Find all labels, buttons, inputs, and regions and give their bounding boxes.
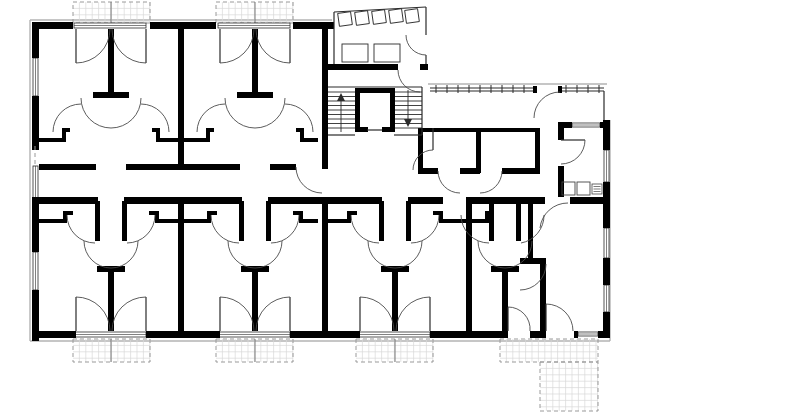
appliance	[577, 182, 590, 195]
wall-segment	[533, 86, 537, 93]
window	[218, 23, 290, 28]
wall-segment	[178, 29, 184, 164]
door-swing-arc	[84, 241, 138, 268]
stair-core-layer	[328, 90, 422, 132]
door-swing-arc	[406, 35, 426, 55]
wall-segment	[355, 127, 368, 132]
window	[604, 150, 609, 182]
wall-segment	[347, 211, 357, 215]
wall-segment	[535, 128, 540, 173]
storage-unit	[342, 44, 368, 62]
wall-segment	[520, 258, 546, 264]
door-swing-arc	[285, 104, 313, 132]
wall-segment	[558, 166, 564, 197]
wall-segment	[206, 128, 214, 132]
wall-segment	[304, 138, 318, 142]
door-swing-arc	[76, 297, 110, 331]
bike-rack	[372, 10, 387, 25]
window	[74, 332, 146, 337]
door-swing-arc	[141, 104, 169, 132]
bike-rack	[405, 9, 420, 24]
wall-segment	[62, 128, 70, 132]
door-swing-arc	[67, 215, 95, 243]
bike-rack	[338, 12, 353, 27]
window	[604, 228, 609, 258]
wall-segment	[418, 168, 438, 174]
wall-segment	[570, 197, 603, 204]
wall-segment	[558, 122, 564, 140]
window	[74, 23, 146, 28]
facade-outline-layer	[30, 20, 610, 341]
wall-segment	[381, 266, 409, 272]
wall-segment	[32, 331, 76, 338]
balcony	[216, 339, 293, 362]
wall-segment	[32, 96, 39, 150]
wall-segment	[184, 219, 207, 223]
wall-segment	[466, 197, 472, 338]
wall-segment	[296, 128, 304, 132]
door-swing-arc	[225, 98, 285, 128]
window	[572, 123, 600, 127]
wall-segment	[355, 88, 395, 93]
wall-segment	[355, 88, 360, 132]
wall-segment	[303, 219, 318, 223]
wall-segment	[322, 22, 328, 169]
window	[604, 285, 609, 312]
door-swing-arc	[112, 297, 146, 331]
wall-segment	[159, 219, 178, 223]
wall-segment	[237, 92, 273, 98]
wall-segment	[32, 197, 98, 204]
door-swing-arc	[546, 304, 573, 331]
wall-segment	[160, 138, 178, 142]
door-swing-arc	[411, 215, 439, 243]
wall-segment	[39, 219, 63, 223]
wall-segment	[126, 164, 182, 170]
door-swing-arc	[220, 297, 254, 331]
wall-segment	[408, 197, 443, 204]
door-swing-arc	[256, 297, 290, 331]
door-swing-arc	[197, 104, 225, 132]
wall-segment	[379, 201, 384, 241]
window	[358, 332, 430, 337]
door-swing-arc	[256, 29, 290, 63]
wall-segment	[239, 201, 244, 241]
door-swing-arc	[76, 29, 110, 63]
wall-segment	[574, 331, 578, 338]
door-swing-arc	[534, 92, 560, 118]
door-swing-arc	[561, 140, 585, 164]
door-swing-arc	[540, 203, 568, 228]
door-swing-arc	[438, 171, 460, 193]
window	[33, 58, 38, 96]
wall-segment	[603, 120, 610, 150]
wall-segment	[476, 128, 481, 173]
wall-segment	[327, 219, 347, 223]
wall-segment	[270, 164, 296, 170]
door-swing-arc	[508, 307, 530, 331]
wall-segment	[502, 168, 540, 174]
wall-segment	[443, 219, 466, 223]
wall-segment	[528, 204, 533, 261]
bike-rack	[389, 9, 404, 24]
wall-segment	[600, 122, 604, 128]
wall-segment	[32, 198, 39, 252]
wall-segment	[603, 258, 610, 285]
door-swing-arc	[398, 70, 420, 92]
stair-direction-arrow	[337, 93, 345, 101]
wall-segment	[485, 211, 489, 223]
window	[33, 252, 38, 290]
door-swing-arc	[351, 215, 379, 243]
wall-segment	[266, 201, 271, 241]
wall-segment	[155, 211, 159, 223]
wall-segment	[152, 128, 160, 132]
door-swing-arc	[396, 297, 430, 331]
window	[218, 332, 290, 337]
balcony-outline	[540, 362, 598, 411]
wall-segment	[491, 266, 519, 272]
wall-segment	[95, 201, 100, 241]
wall-segment	[328, 64, 398, 70]
floor-plan-page	[0, 0, 800, 413]
wall-segment	[390, 88, 395, 132]
wall-segment	[32, 22, 73, 29]
wall-segment	[516, 201, 521, 241]
wall-segment	[241, 266, 269, 272]
wall-segment	[382, 127, 395, 132]
wall-segment	[489, 201, 494, 241]
wall-segment	[420, 64, 428, 70]
wall-segment	[122, 201, 127, 241]
wall-segment	[299, 211, 303, 223]
wall-segment	[178, 197, 184, 338]
door-swing-arc	[296, 167, 322, 193]
balcony	[73, 339, 150, 362]
balcony	[500, 339, 598, 362]
wall-segment	[406, 201, 411, 241]
wall-segment	[93, 92, 129, 98]
wall-segment	[39, 138, 62, 142]
wall-segment	[603, 312, 610, 338]
wall-segment	[39, 164, 96, 170]
door-swing-arc	[228, 241, 282, 268]
floor-plan-canvas	[0, 0, 800, 413]
wall-segment	[502, 272, 508, 331]
wall-segment	[63, 211, 73, 215]
door-swing-arc	[480, 171, 502, 193]
wall-segment	[322, 197, 328, 338]
wall-segment	[460, 168, 480, 174]
wall-segment	[540, 264, 546, 331]
wall-segment	[184, 138, 206, 142]
door-swing-arc	[53, 104, 81, 132]
storage-unit	[374, 44, 400, 62]
wall-segment	[472, 219, 485, 223]
wall-segment	[603, 182, 610, 228]
bike-rack	[355, 11, 370, 26]
wall-segment	[472, 197, 545, 204]
door-swing-arc	[360, 297, 394, 331]
door-swing-arc	[112, 29, 146, 63]
window	[33, 166, 38, 198]
door-swing-arc	[81, 98, 141, 128]
wall-segment	[530, 331, 546, 338]
door-swing-arc	[368, 241, 422, 268]
door-swing-arc	[220, 29, 254, 63]
wall-segment	[439, 211, 443, 223]
window	[578, 332, 598, 336]
wall-segment	[182, 164, 240, 170]
wall-segment	[150, 22, 216, 29]
wall-segment	[207, 211, 217, 215]
stair-direction-arrow	[404, 119, 412, 127]
wall-layer	[32, 22, 610, 341]
balcony	[356, 339, 433, 362]
door-swing-arc	[211, 215, 239, 243]
wall-segment	[97, 266, 125, 272]
door-swing-arc	[271, 215, 299, 243]
balcony	[540, 362, 598, 411]
door-swing-arc	[127, 215, 155, 243]
